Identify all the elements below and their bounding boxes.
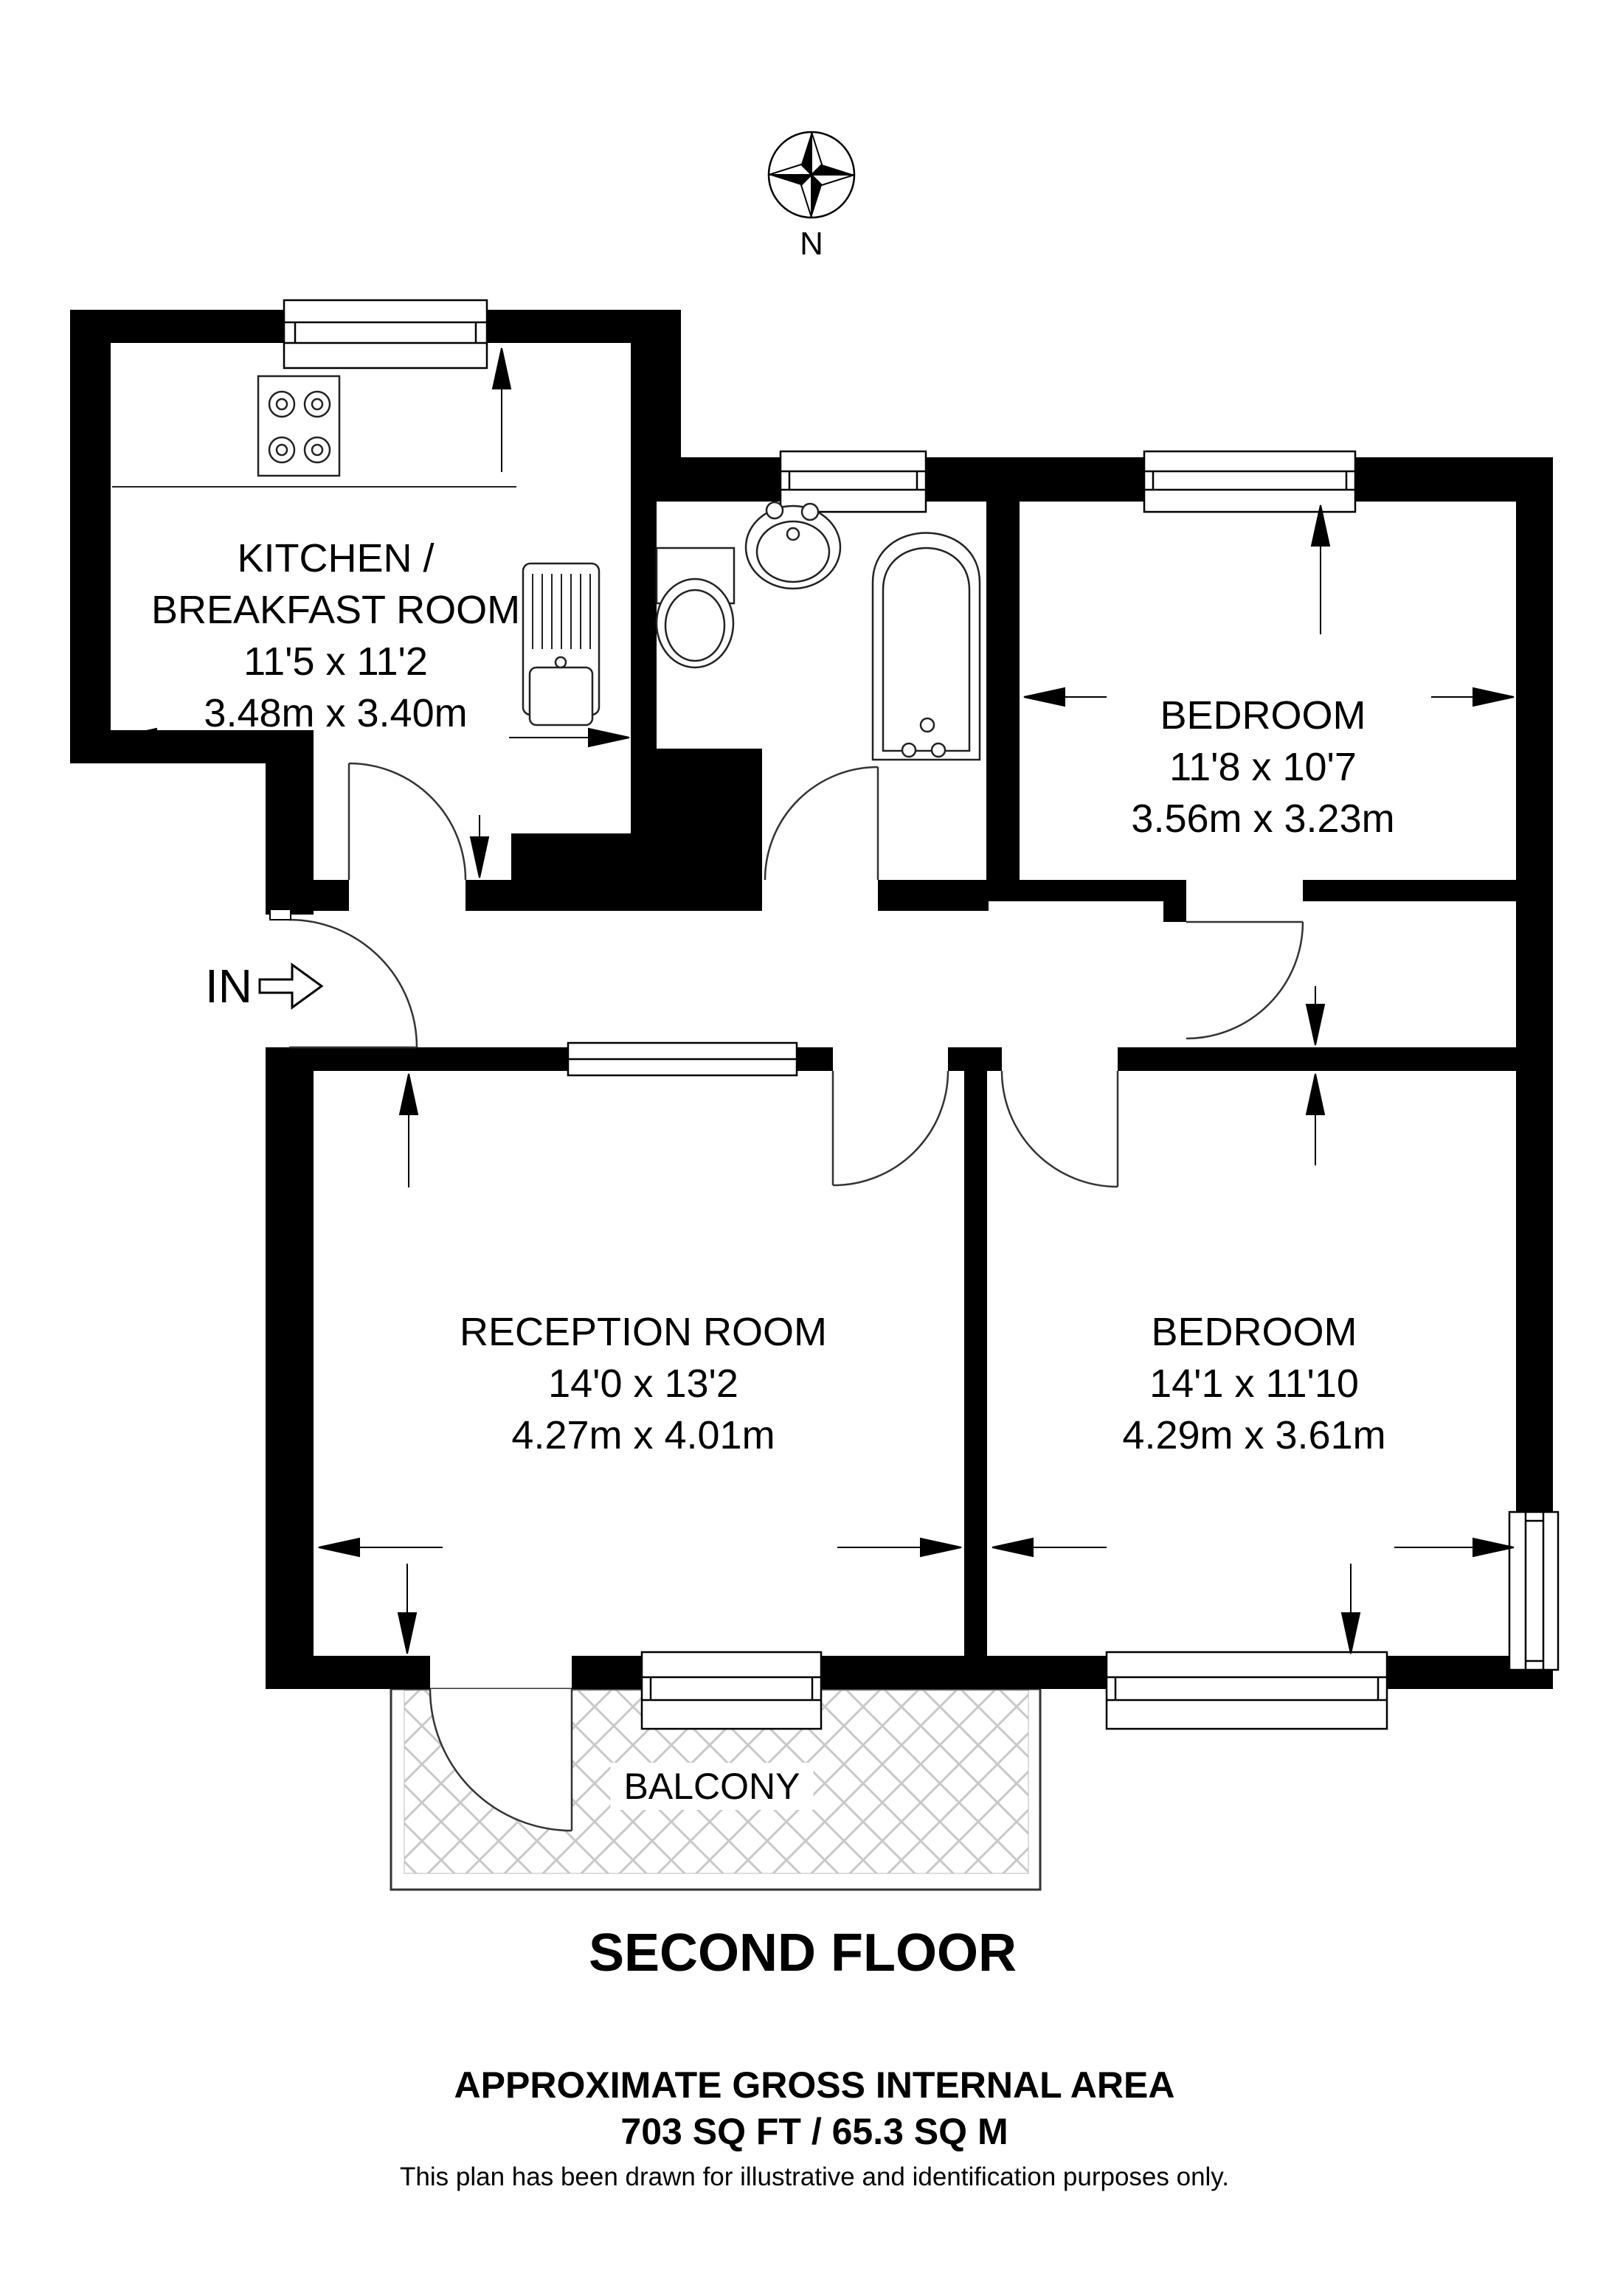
kitchen-window	[284, 300, 487, 368]
reception-name: RECEPTION ROOM	[460, 1306, 827, 1358]
compass-north-label: N	[800, 218, 823, 270]
kitchen-name-line1: KITCHEN /	[151, 533, 520, 584]
bedroom1-door	[1186, 922, 1303, 1038]
bedroom1-label: BEDROOM 11'8 x 10'7 3.56m x 3.23m	[1131, 690, 1394, 844]
kitchen-dim-imperial: 11'5 x 11'2	[151, 636, 520, 687]
bedroom1-name: BEDROOM	[1131, 690, 1394, 741]
bedroom2-dim-metric: 4.29m x 3.61m	[1122, 1409, 1385, 1461]
bedroom2-name: BEDROOM	[1122, 1306, 1385, 1358]
kitchen-door	[349, 763, 466, 880]
disclaimer: This plan has been drawn for illustrativ…	[400, 2151, 1229, 2203]
kitchen-dim-metric: 3.48m x 3.40m	[151, 687, 520, 739]
internal-window	[568, 1043, 797, 1075]
reception-door	[833, 1071, 948, 1185]
reception-dim-metric: 4.27m x 4.01m	[460, 1409, 827, 1461]
window-symbols	[284, 300, 1558, 1729]
reception-window	[642, 1652, 821, 1729]
toilet-icon	[657, 548, 734, 667]
area-value: 703 SQ FT / 65.3 SQ M	[620, 2106, 1008, 2157]
bedroom2-bottom-window	[1107, 1652, 1387, 1729]
kitchen-sink-icon	[523, 563, 599, 725]
bedroom1-dim-metric: 3.56m x 3.23m	[1131, 793, 1394, 844]
entrance-arrow-icon	[260, 965, 322, 1007]
kitchen-name-line2: BREAKFAST ROOM	[151, 584, 520, 636]
bedroom1-dim-imperial: 11'8 x 10'7	[1131, 741, 1394, 793]
balcony-label: BALCONY	[611, 1763, 814, 1810]
bathroom-window	[781, 451, 926, 512]
reception-label: RECEPTION ROOM 14'0 x 13'2 4.27m x 4.01m	[460, 1306, 827, 1461]
entrance-label: IN	[205, 960, 252, 1012]
floor-title: SECOND FLOOR	[589, 1927, 1017, 1979]
floorplan-page: KITCHEN / BREAKFAST ROOM 11'5 x 11'2 3.4…	[0, 0, 1623, 2296]
basin-icon	[746, 502, 840, 589]
reception-dim-imperial: 14'0 x 13'2	[460, 1358, 827, 1409]
bathroom-door	[765, 767, 878, 880]
compass-icon	[769, 132, 854, 218]
bedroom2-dim-imperial: 14'1 x 11'10	[1122, 1358, 1385, 1409]
area-heading: APPROXIMATE GROSS INTERNAL AREA	[454, 2059, 1175, 2111]
bedroom2-label: BEDROOM 14'1 x 11'10 4.29m x 3.61m	[1122, 1306, 1385, 1461]
bedroom2-right-window	[1509, 1512, 1558, 1670]
kitchen-label: KITCHEN / BREAKFAST ROOM 11'5 x 11'2 3.4…	[151, 533, 520, 739]
bedroom2-door	[1002, 1071, 1118, 1187]
bedroom1-window	[1144, 451, 1355, 512]
stove-icon	[258, 376, 339, 476]
bathtub-icon	[873, 533, 980, 760]
